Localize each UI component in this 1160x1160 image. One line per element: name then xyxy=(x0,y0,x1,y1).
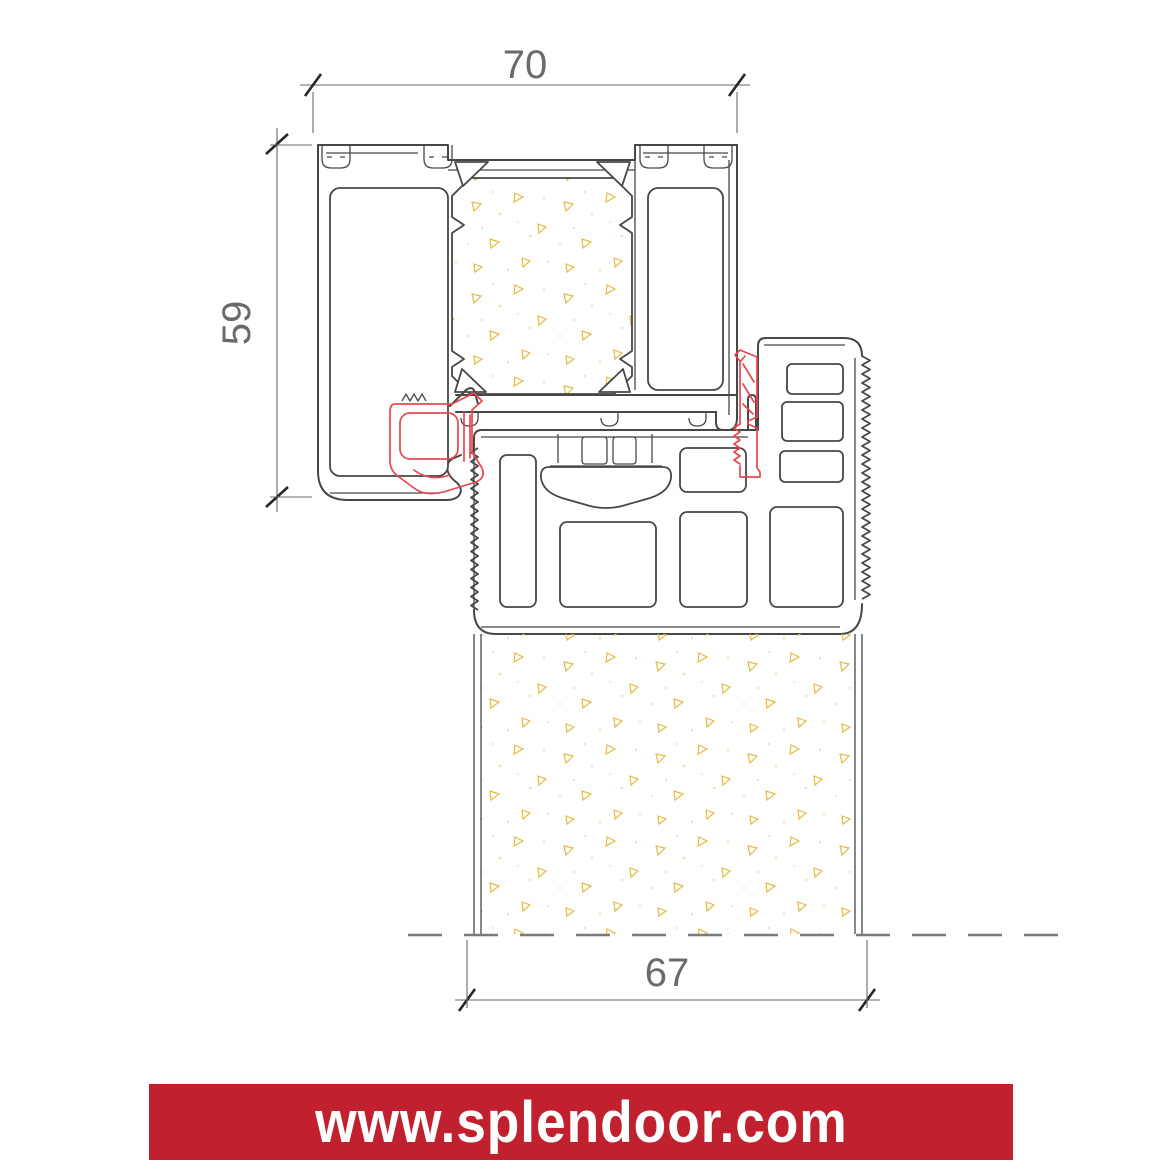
frame-left-chamber xyxy=(330,188,448,476)
extension-line xyxy=(270,145,312,497)
dimension-left-height: 59 xyxy=(215,128,312,512)
dimension-bottom-width: 67 xyxy=(455,940,880,1011)
website-url: www.splendoor.com xyxy=(315,1089,848,1156)
dimension-59-label: 59 xyxy=(215,301,259,346)
comb-slot xyxy=(613,437,636,464)
threshold-chamber xyxy=(560,522,656,607)
comb-slot xyxy=(582,437,607,464)
dimension-70-label: 70 xyxy=(503,43,548,87)
dimension-67-label: 67 xyxy=(645,951,690,995)
profile-cross-section-drawing: 70 59 67 xyxy=(0,0,1160,1160)
threshold-right-serration xyxy=(862,356,870,599)
extension-line xyxy=(313,92,737,133)
threshold-chamber xyxy=(680,512,747,607)
dimension-top-width: 70 xyxy=(300,43,750,133)
footer-banner: www.splendoor.com xyxy=(149,1084,1013,1160)
insulation-block xyxy=(408,634,1058,935)
screw-slot xyxy=(322,145,350,168)
threshold-chamber xyxy=(787,364,843,394)
threshold-chamber xyxy=(780,451,843,482)
screw-slot xyxy=(640,145,668,168)
frame-drip-hook xyxy=(447,455,461,500)
threshold-chamber xyxy=(500,455,536,607)
threshold-chamber xyxy=(770,507,843,607)
page-canvas: 70 59 67 www.splendoor.com xyxy=(0,0,1160,1160)
frame-right-chamber xyxy=(648,188,723,390)
screw-slot xyxy=(704,145,732,168)
thermal-break-foam xyxy=(452,178,632,394)
threshold-chamber xyxy=(782,402,843,441)
threshold-bottom-edge xyxy=(474,604,862,634)
comb-bubble xyxy=(541,467,671,508)
threshold-chamber xyxy=(680,448,746,492)
